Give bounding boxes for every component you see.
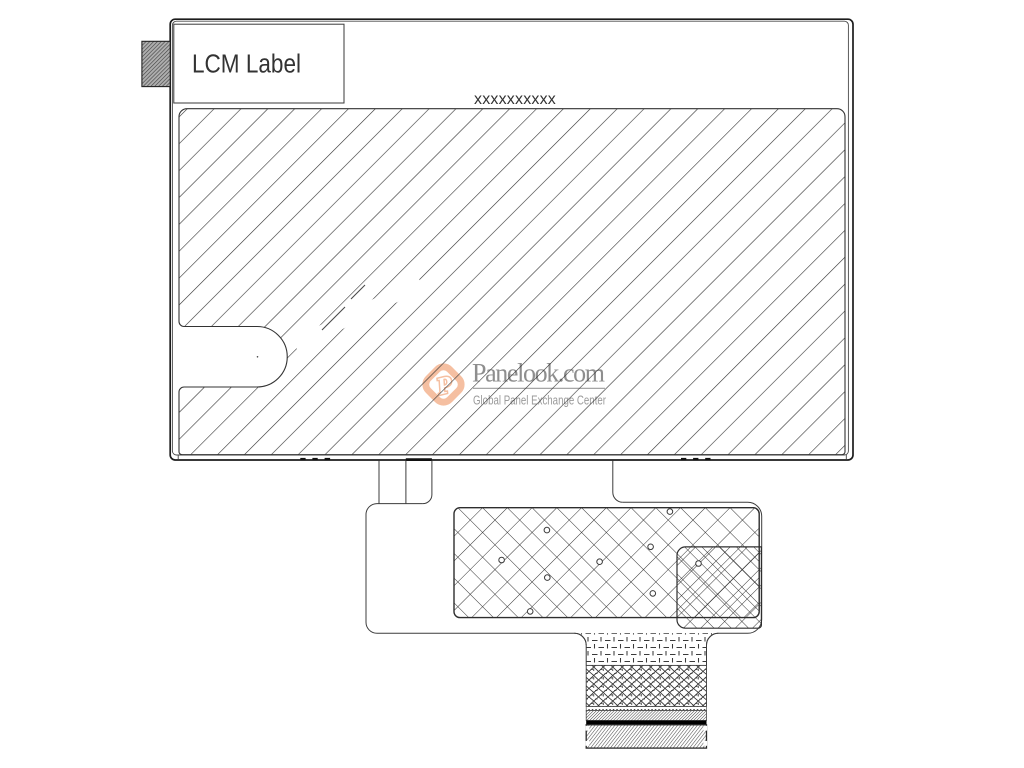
svg-text:LCM Label: LCM Label (192, 51, 301, 79)
svg-text:xxxxxxxxxx: xxxxxxxxxx (474, 91, 556, 108)
